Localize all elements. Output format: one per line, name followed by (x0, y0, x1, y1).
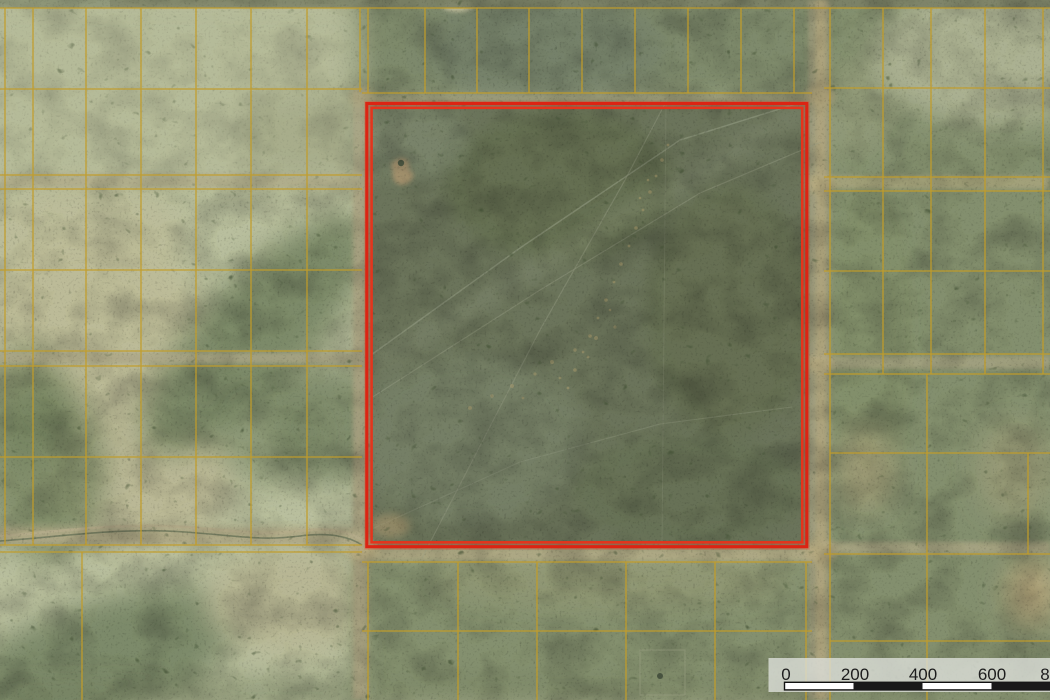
svg-text:400: 400 (909, 665, 937, 684)
svg-text:600: 600 (978, 665, 1006, 684)
svg-text:0: 0 (781, 665, 790, 684)
svg-text:200: 200 (841, 665, 869, 684)
svg-text:8: 8 (1040, 665, 1049, 684)
